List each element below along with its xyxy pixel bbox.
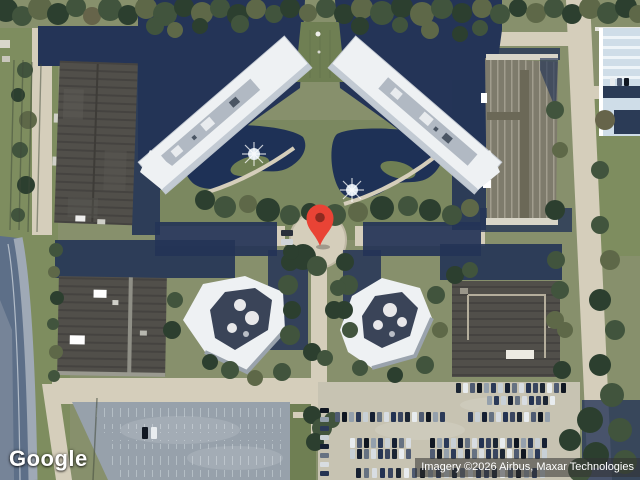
parking-lot-west xyxy=(72,402,290,480)
google-logo[interactable]: Google xyxy=(9,446,88,472)
office-building-dark-se xyxy=(452,281,560,377)
office-building-dark-nw xyxy=(50,61,138,226)
parking-garage-ne xyxy=(481,54,558,225)
fountain-icon xyxy=(242,142,266,166)
office-building-dark-sw xyxy=(57,276,167,377)
map-canvas[interactable]: Google Imagery ©2026 Airbus, Maxar Techn… xyxy=(0,0,640,480)
fountain-icon xyxy=(340,178,364,202)
imagery-attribution: Imagery ©2026 Airbus, Maxar Technologies xyxy=(415,458,640,477)
satellite-imagery xyxy=(0,0,640,480)
